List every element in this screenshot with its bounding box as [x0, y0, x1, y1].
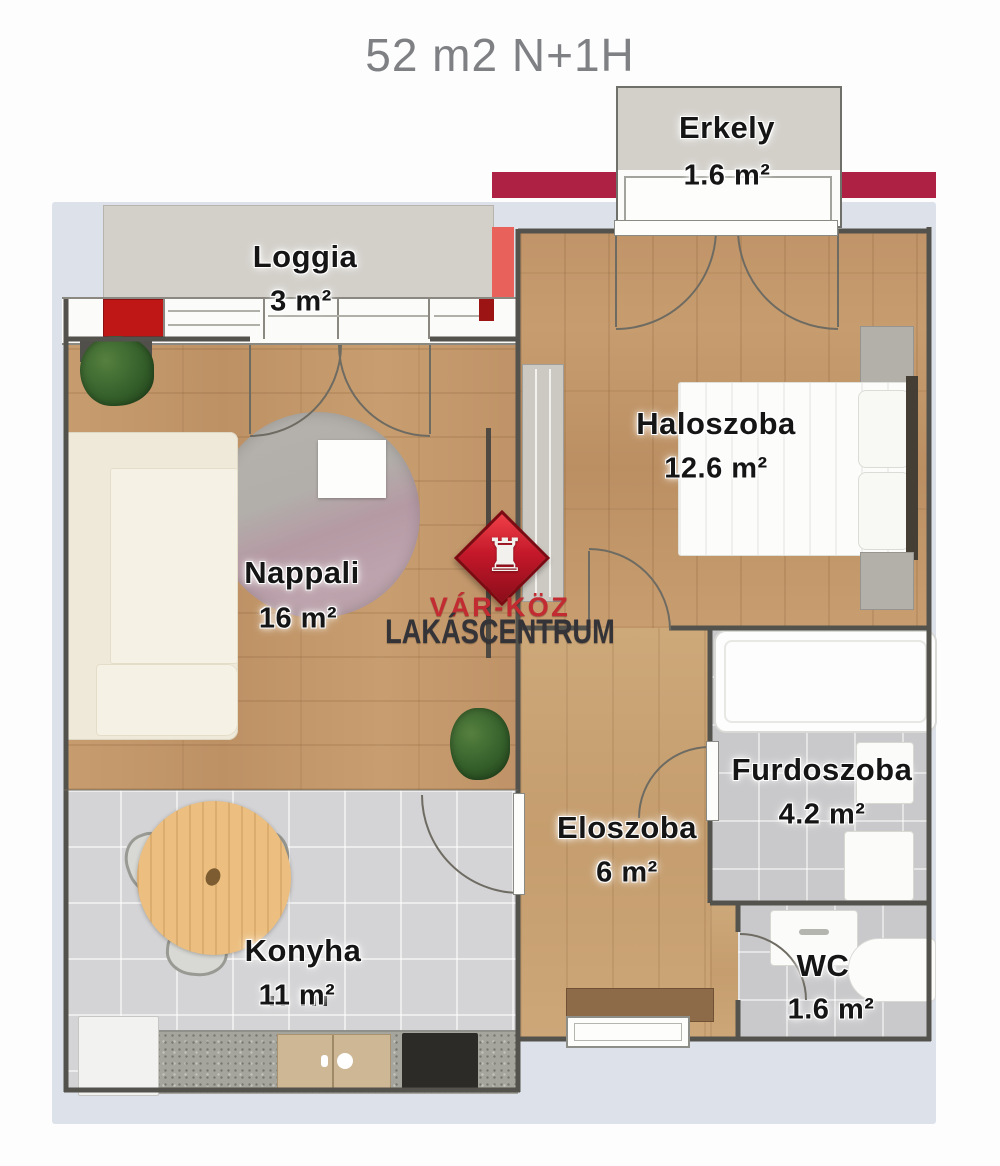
rook-icon: ♜ [474, 524, 536, 586]
wardrobe-door-line [549, 369, 551, 597]
room-area-eloszoba: 6 m² [596, 857, 658, 890]
room-area-erkely: 1.6 m² [684, 160, 771, 193]
room-label-loggia: Loggia [253, 239, 358, 275]
coffee-table [318, 440, 386, 498]
bathtub [714, 630, 937, 733]
bathroom-door-leaf [706, 741, 719, 821]
kitchen-door-leaf [513, 793, 525, 895]
room-label-konyha: Konyha [245, 933, 362, 969]
eloszoba-floor-strip [710, 903, 740, 1041]
room-label-nappali: Nappali [244, 555, 359, 591]
entrance-door-frame [574, 1023, 682, 1041]
sink-divider [332, 1035, 334, 1091]
room-area-haloszoba: 12.6 m² [664, 453, 767, 486]
stove [402, 1033, 478, 1092]
window-frame-tick [337, 299, 339, 339]
sink-basin [337, 1053, 353, 1069]
plant [450, 708, 510, 780]
room-area-loggia: 3 m² [270, 286, 332, 319]
fridge [78, 1016, 159, 1096]
window-frame-tick [428, 299, 430, 339]
room-area-furdoszoba: 4.2 m² [779, 799, 866, 832]
wall-accent-darkred [479, 299, 494, 321]
sink-tap [321, 1055, 328, 1067]
room-area-nappali: 16 m² [259, 603, 337, 636]
toilet [848, 938, 936, 1002]
dining-table [137, 801, 291, 955]
erkely-balcony [616, 86, 842, 228]
nightstand [860, 552, 914, 610]
room-area-konyha: 11 m² [259, 980, 336, 1013]
room-label-wc: WC [797, 948, 850, 984]
room-area-wc: 1.6 m² [788, 994, 875, 1027]
facade-red-band-left [492, 172, 616, 198]
wall-accent-salmon [492, 227, 514, 297]
plant [80, 336, 154, 406]
sofa-chaise [96, 664, 238, 736]
bathroom-vanity [844, 831, 914, 901]
facade-red-band-right [838, 172, 936, 198]
window-wall-red-block [103, 299, 164, 337]
window-frame-tick [263, 299, 265, 339]
sofa-seat [110, 468, 238, 664]
bed-headboard [906, 376, 918, 560]
table-knot [203, 866, 223, 888]
page-title: 52 m2 N+1H [0, 28, 1000, 82]
window-mullion [168, 324, 260, 326]
floor-plan: 52 m2 N+1H [0, 0, 1000, 1166]
balcony-door-threshold [614, 220, 838, 236]
window-frame-tick [163, 299, 165, 339]
room-label-furdoszoba: Furdoszoba [732, 752, 913, 788]
room-label-haloszoba: Haloszoba [636, 406, 796, 442]
bathtub-basin [724, 640, 927, 723]
pillow [858, 390, 910, 468]
kitchen-sink [277, 1034, 391, 1092]
pillow [858, 472, 910, 550]
room-label-eloszoba: Eloszoba [557, 810, 697, 846]
room-label-erkely: Erkely [679, 110, 775, 146]
entrance-door [566, 1016, 690, 1048]
window-mullion [168, 310, 260, 312]
watermark-brand-line2: LAKÁSCENTRUM [385, 613, 615, 652]
faucet-icon [799, 929, 829, 935]
